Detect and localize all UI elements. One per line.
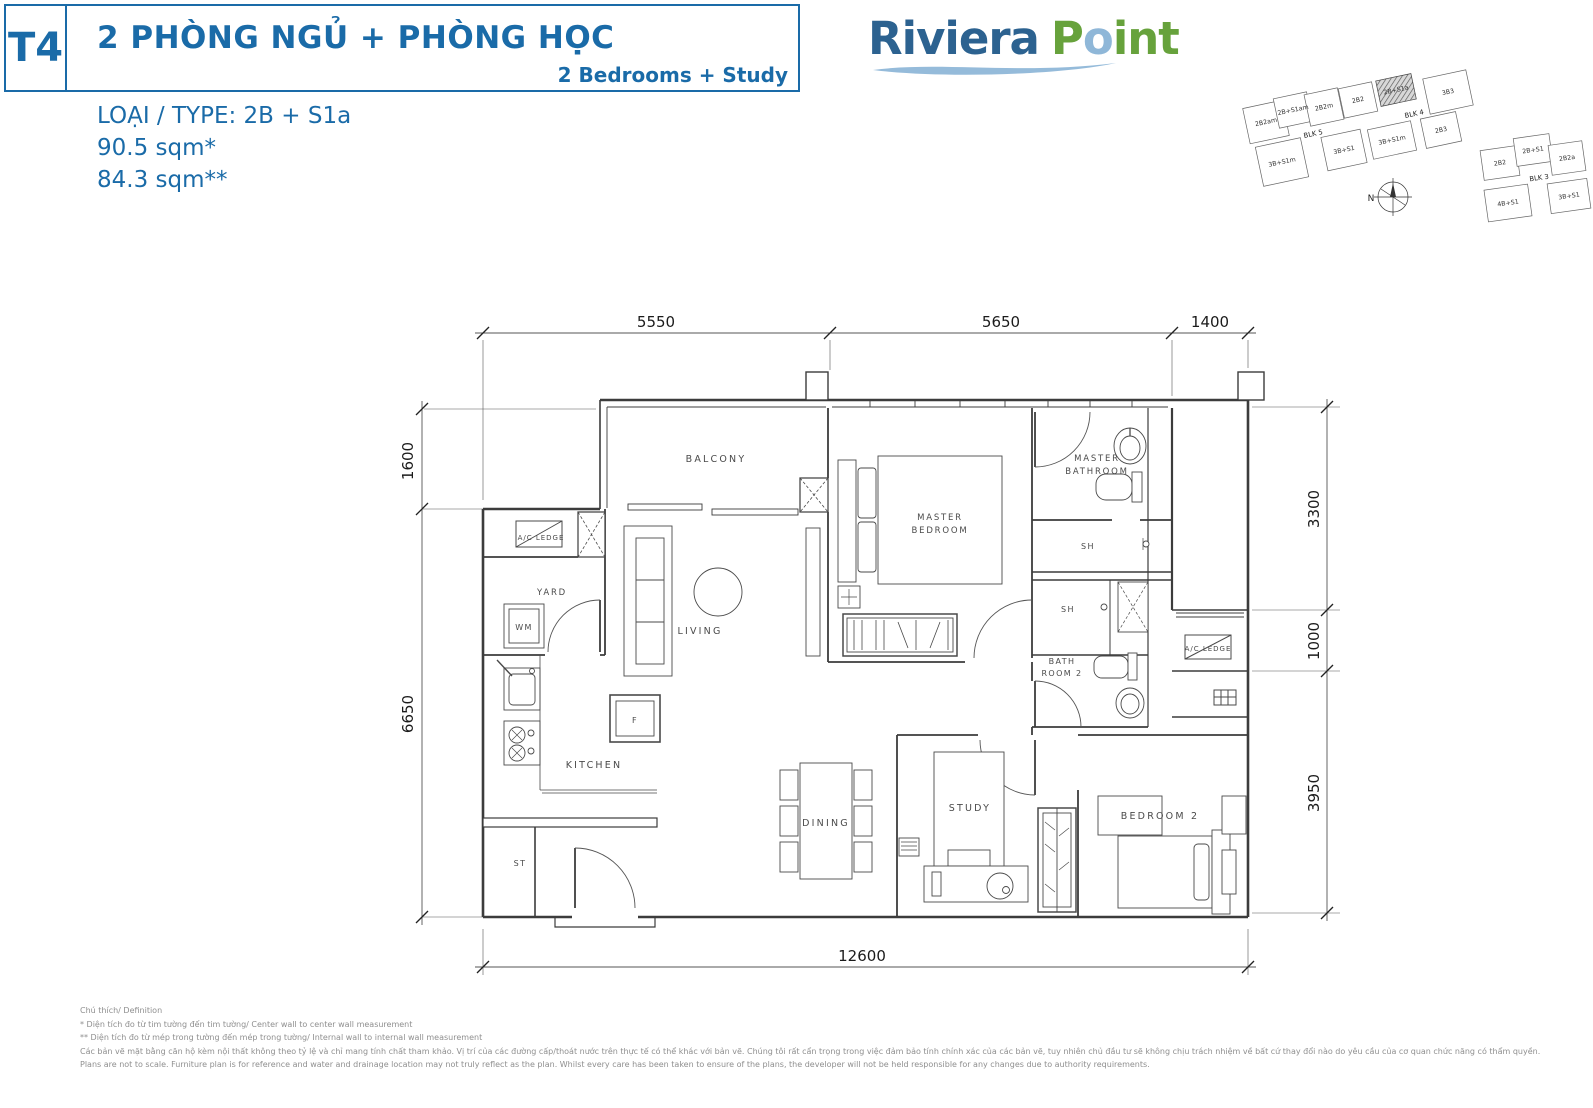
bedroom2-nightstand bbox=[1222, 796, 1246, 834]
bathroom2-label-2: ROOM 2 bbox=[1041, 669, 1082, 678]
master-bathroom-label-2: BATHROOM bbox=[1065, 467, 1129, 477]
ac-ledge-left-label: A/C LEDGE bbox=[518, 534, 565, 542]
wm-label: WM bbox=[515, 623, 533, 632]
toilet-2 bbox=[1094, 656, 1128, 678]
disclaimer-line: ** Diện tích đo từ mép trong tường đến m… bbox=[80, 1031, 1560, 1045]
dining-label: DINING bbox=[802, 818, 850, 829]
dim-top-3: 1400 bbox=[1191, 313, 1229, 331]
kitchen-label: KITCHEN bbox=[566, 760, 623, 771]
site-block-label: BLK 3 bbox=[1529, 173, 1549, 184]
shower-head-1 bbox=[1143, 541, 1149, 547]
coffee-table bbox=[694, 568, 742, 616]
yard-label: YARD bbox=[536, 588, 567, 598]
compass-icon bbox=[1374, 178, 1412, 216]
dim-left-2: 6650 bbox=[399, 695, 417, 733]
compass-north-label: N bbox=[1368, 194, 1375, 204]
furniture bbox=[497, 428, 1246, 914]
shower-head-2 bbox=[1101, 604, 1107, 610]
shower-tray bbox=[1118, 582, 1148, 632]
master-bed-headboard bbox=[838, 460, 856, 582]
bedroom2-label: BEDROOM 2 bbox=[1121, 811, 1199, 822]
bathroom2-label-1: BATH bbox=[1049, 657, 1076, 666]
floor-plan-drawing: 5550 5650 1400 1600 6650 3300 1000 3950 … bbox=[0, 0, 1593, 1108]
disclaimer: Chú thích/ Definition * Diện tích đo từ … bbox=[80, 1004, 1560, 1072]
living-label: LIVING bbox=[677, 626, 722, 637]
shelf bbox=[899, 838, 919, 856]
disclaimer-line: Chú thích/ Definition bbox=[80, 1004, 1560, 1018]
master-bedroom-label-2: BEDROOM bbox=[912, 526, 969, 536]
dim-top-1: 5550 bbox=[637, 313, 675, 331]
fridge-label: F bbox=[632, 716, 638, 725]
service-shafts bbox=[578, 478, 828, 557]
ac-ledge-right-label: A/C LEDGE bbox=[1185, 645, 1232, 653]
dim-left-1: 1600 bbox=[399, 442, 417, 480]
disclaimer-line: * Diện tích đo từ tim tường đến tim tườn… bbox=[80, 1018, 1560, 1032]
disclaimer-line: Plans are not to scale. Furniture plan i… bbox=[80, 1058, 1560, 1072]
floor-plan-page: { "theme": { "brand-blue": "#1A6BA8", "l… bbox=[0, 0, 1593, 1108]
study-label: STUDY bbox=[949, 803, 991, 814]
dim-right-2: 1000 bbox=[1305, 622, 1323, 660]
master-bathroom-label-1: MASTER bbox=[1074, 454, 1120, 464]
site-cluster-blk3: 2B2 2B+S1 2B2a 4B+S1 3B+S1 BLK 3 bbox=[1480, 134, 1591, 222]
balcony-label: BALCONY bbox=[686, 454, 747, 465]
disclaimer-line: Các bản vẽ mặt bằng căn hộ kèm nội thất … bbox=[80, 1045, 1560, 1059]
shower1-label: SH bbox=[1081, 542, 1095, 551]
site-key-plan: 2B2am 2B+S1am 2B2m 2B2 2B+S1a 3B3 3B+S1m… bbox=[1243, 70, 1591, 222]
site-block-label: BLK 4 bbox=[1404, 108, 1425, 120]
dim-right-1: 3300 bbox=[1305, 490, 1323, 528]
study-chair bbox=[987, 873, 1013, 899]
site-block-label: BLK 5 bbox=[1303, 128, 1324, 140]
master-toilet bbox=[1096, 474, 1132, 500]
shower2-label: SH bbox=[1061, 605, 1075, 614]
dim-right-3: 3950 bbox=[1305, 774, 1323, 812]
master-bedroom-label-1: MASTER bbox=[917, 513, 963, 523]
dim-top-2: 5650 bbox=[982, 313, 1020, 331]
dim-bottom-1: 12600 bbox=[838, 947, 886, 965]
site-cluster-blk45: 2B2am 2B+S1am 2B2m 2B2 2B+S1a 3B3 3B+S1m… bbox=[1243, 70, 1474, 187]
store-label: ST bbox=[514, 859, 527, 868]
tv-console bbox=[806, 528, 820, 656]
